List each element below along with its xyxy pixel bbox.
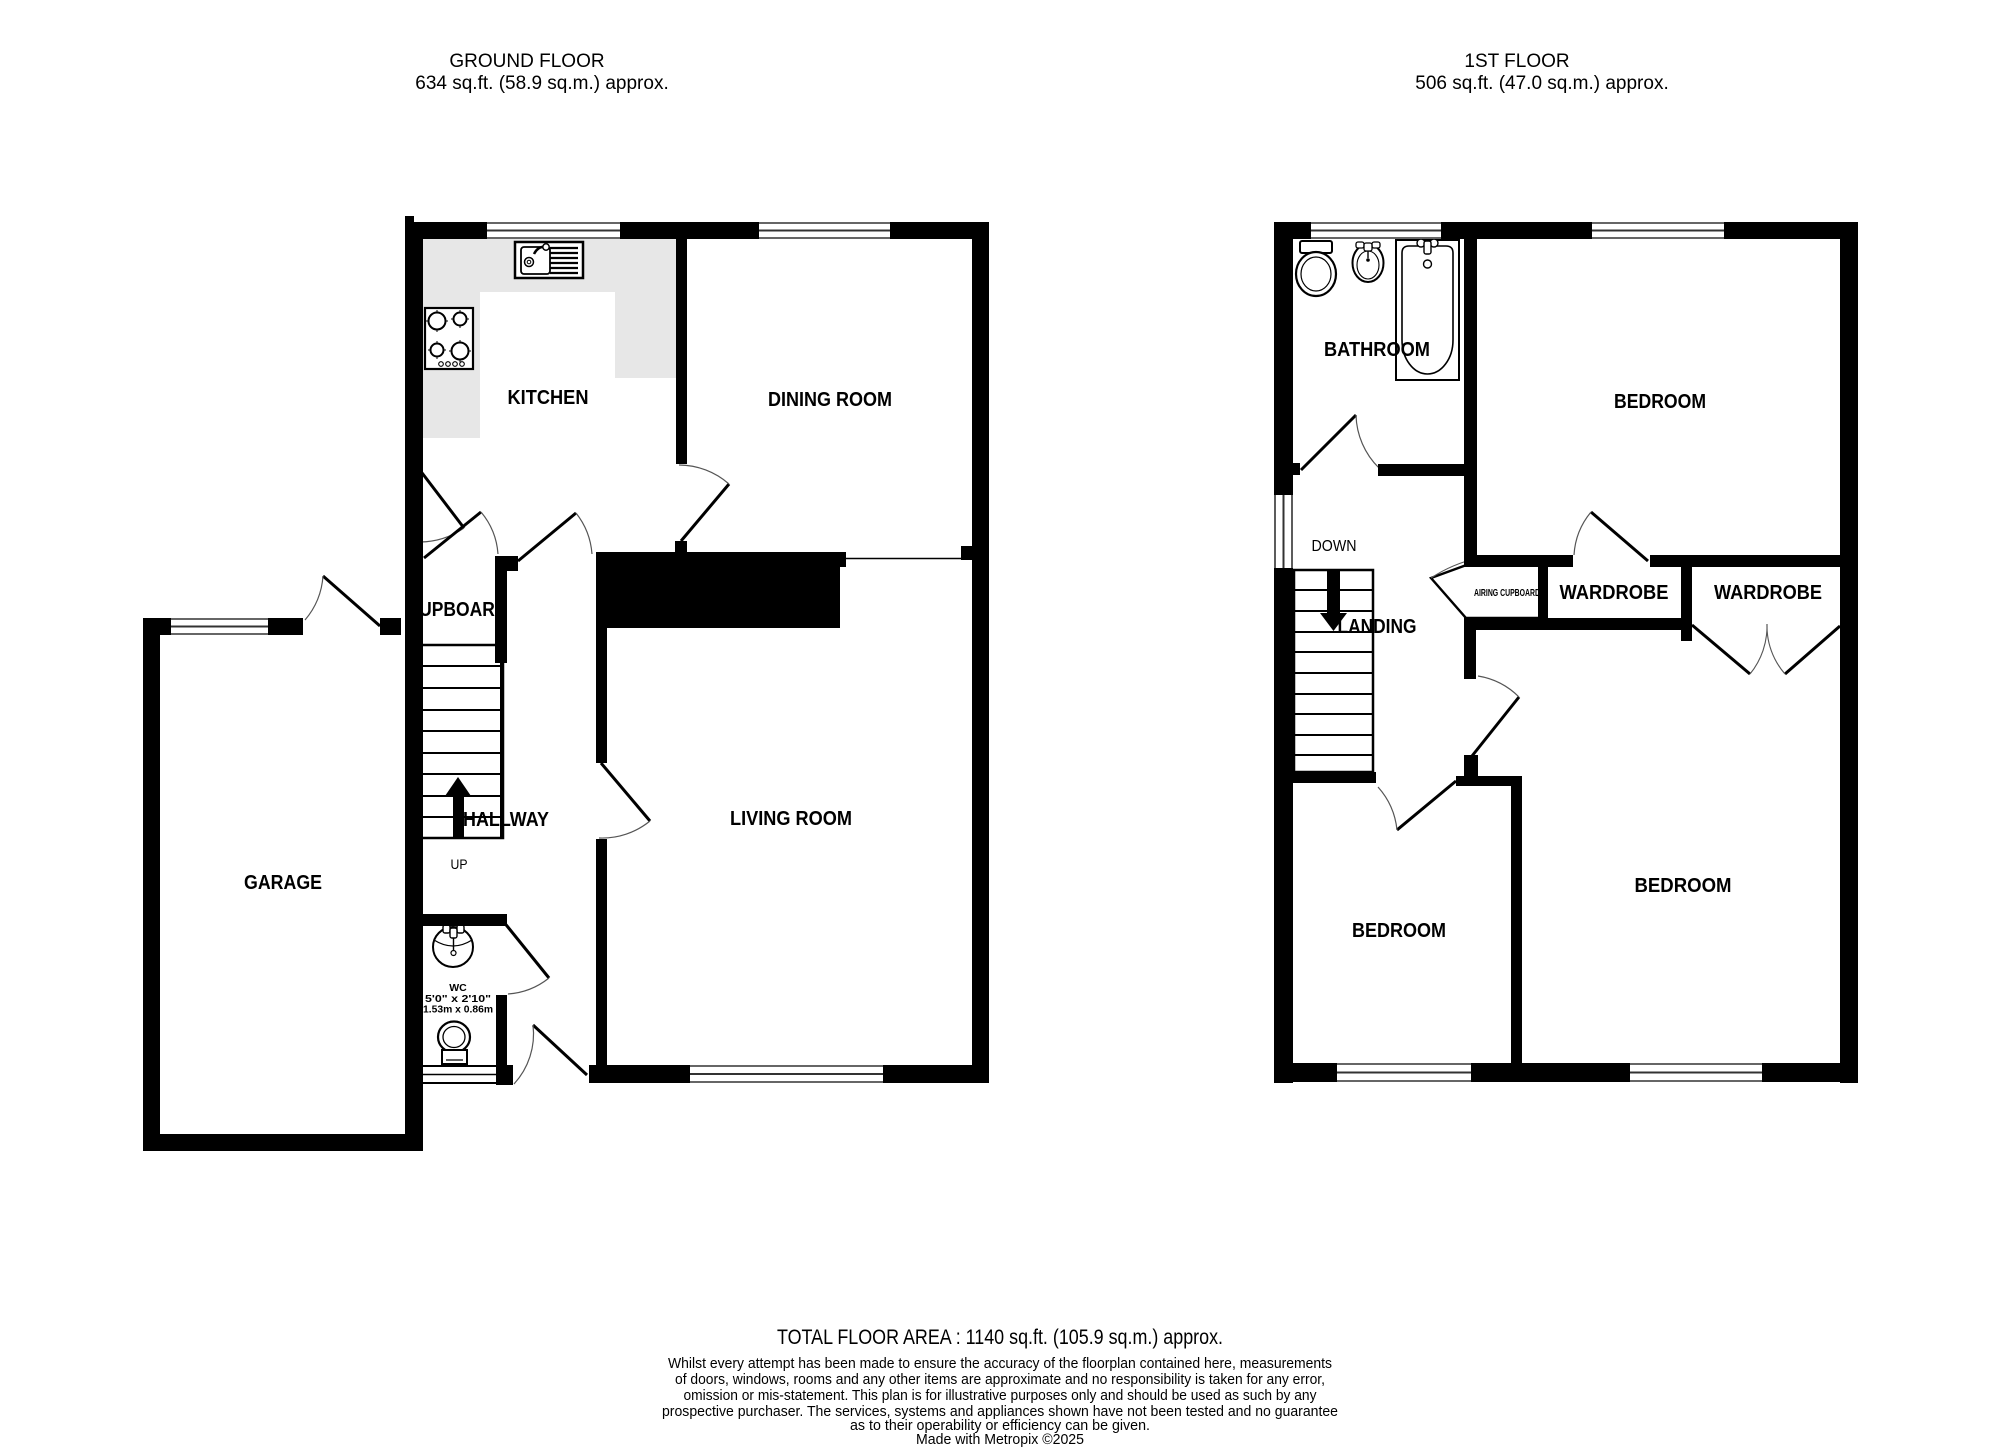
svg-text:LIVING ROOM: LIVING ROOM xyxy=(730,808,852,830)
svg-text:506 sq.ft. (47.0 sq.m.) approx: 506 sq.ft. (47.0 sq.m.) approx. xyxy=(1415,73,1668,94)
svg-text:Whilst every attempt has been: Whilst every attempt has been made to en… xyxy=(668,1355,1332,1372)
svg-text:LANDING: LANDING xyxy=(1338,616,1417,638)
svg-text:Made with Metropix ©2025: Made with Metropix ©2025 xyxy=(916,1431,1084,1448)
svg-text:GARAGE: GARAGE xyxy=(244,872,322,894)
svg-text:DINING ROOM: DINING ROOM xyxy=(768,389,892,411)
svg-text:TOTAL FLOOR AREA : 1140 sq.ft.: TOTAL FLOOR AREA : 1140 sq.ft. (105.9 sq… xyxy=(777,1326,1223,1349)
svg-text:WARDROBE: WARDROBE xyxy=(1714,582,1822,604)
svg-text:BEDROOM: BEDROOM xyxy=(1614,391,1706,413)
svg-text:GROUND FLOOR: GROUND FLOOR xyxy=(449,51,604,72)
svg-text:omission or mis-statement. Thi: omission or mis-statement. This plan is … xyxy=(684,1387,1317,1404)
svg-text:AIRING CUPBOARD: AIRING CUPBOARD xyxy=(1474,587,1540,599)
svg-text:BATHROOM: BATHROOM xyxy=(1324,339,1430,361)
svg-text:UP: UP xyxy=(451,856,468,872)
svg-text:634 sq.ft. (58.9 sq.m.) approx: 634 sq.ft. (58.9 sq.m.) approx. xyxy=(415,73,668,94)
svg-text:HALLWAY: HALLWAY xyxy=(463,809,550,831)
svg-text:BEDROOM: BEDROOM xyxy=(1352,920,1446,942)
svg-text:1.53m x 0.86m: 1.53m x 0.86m xyxy=(423,1004,493,1016)
svg-text:WARDROBE: WARDROBE xyxy=(1560,582,1669,604)
svg-text:KITCHEN: KITCHEN xyxy=(508,387,589,409)
svg-text:DOWN: DOWN xyxy=(1312,538,1357,555)
svg-text:1ST FLOOR: 1ST FLOOR xyxy=(1464,51,1569,72)
svg-text:BEDROOM: BEDROOM xyxy=(1635,875,1732,897)
svg-text:of doors, windows, rooms and a: of doors, windows, rooms and any other i… xyxy=(675,1371,1325,1388)
